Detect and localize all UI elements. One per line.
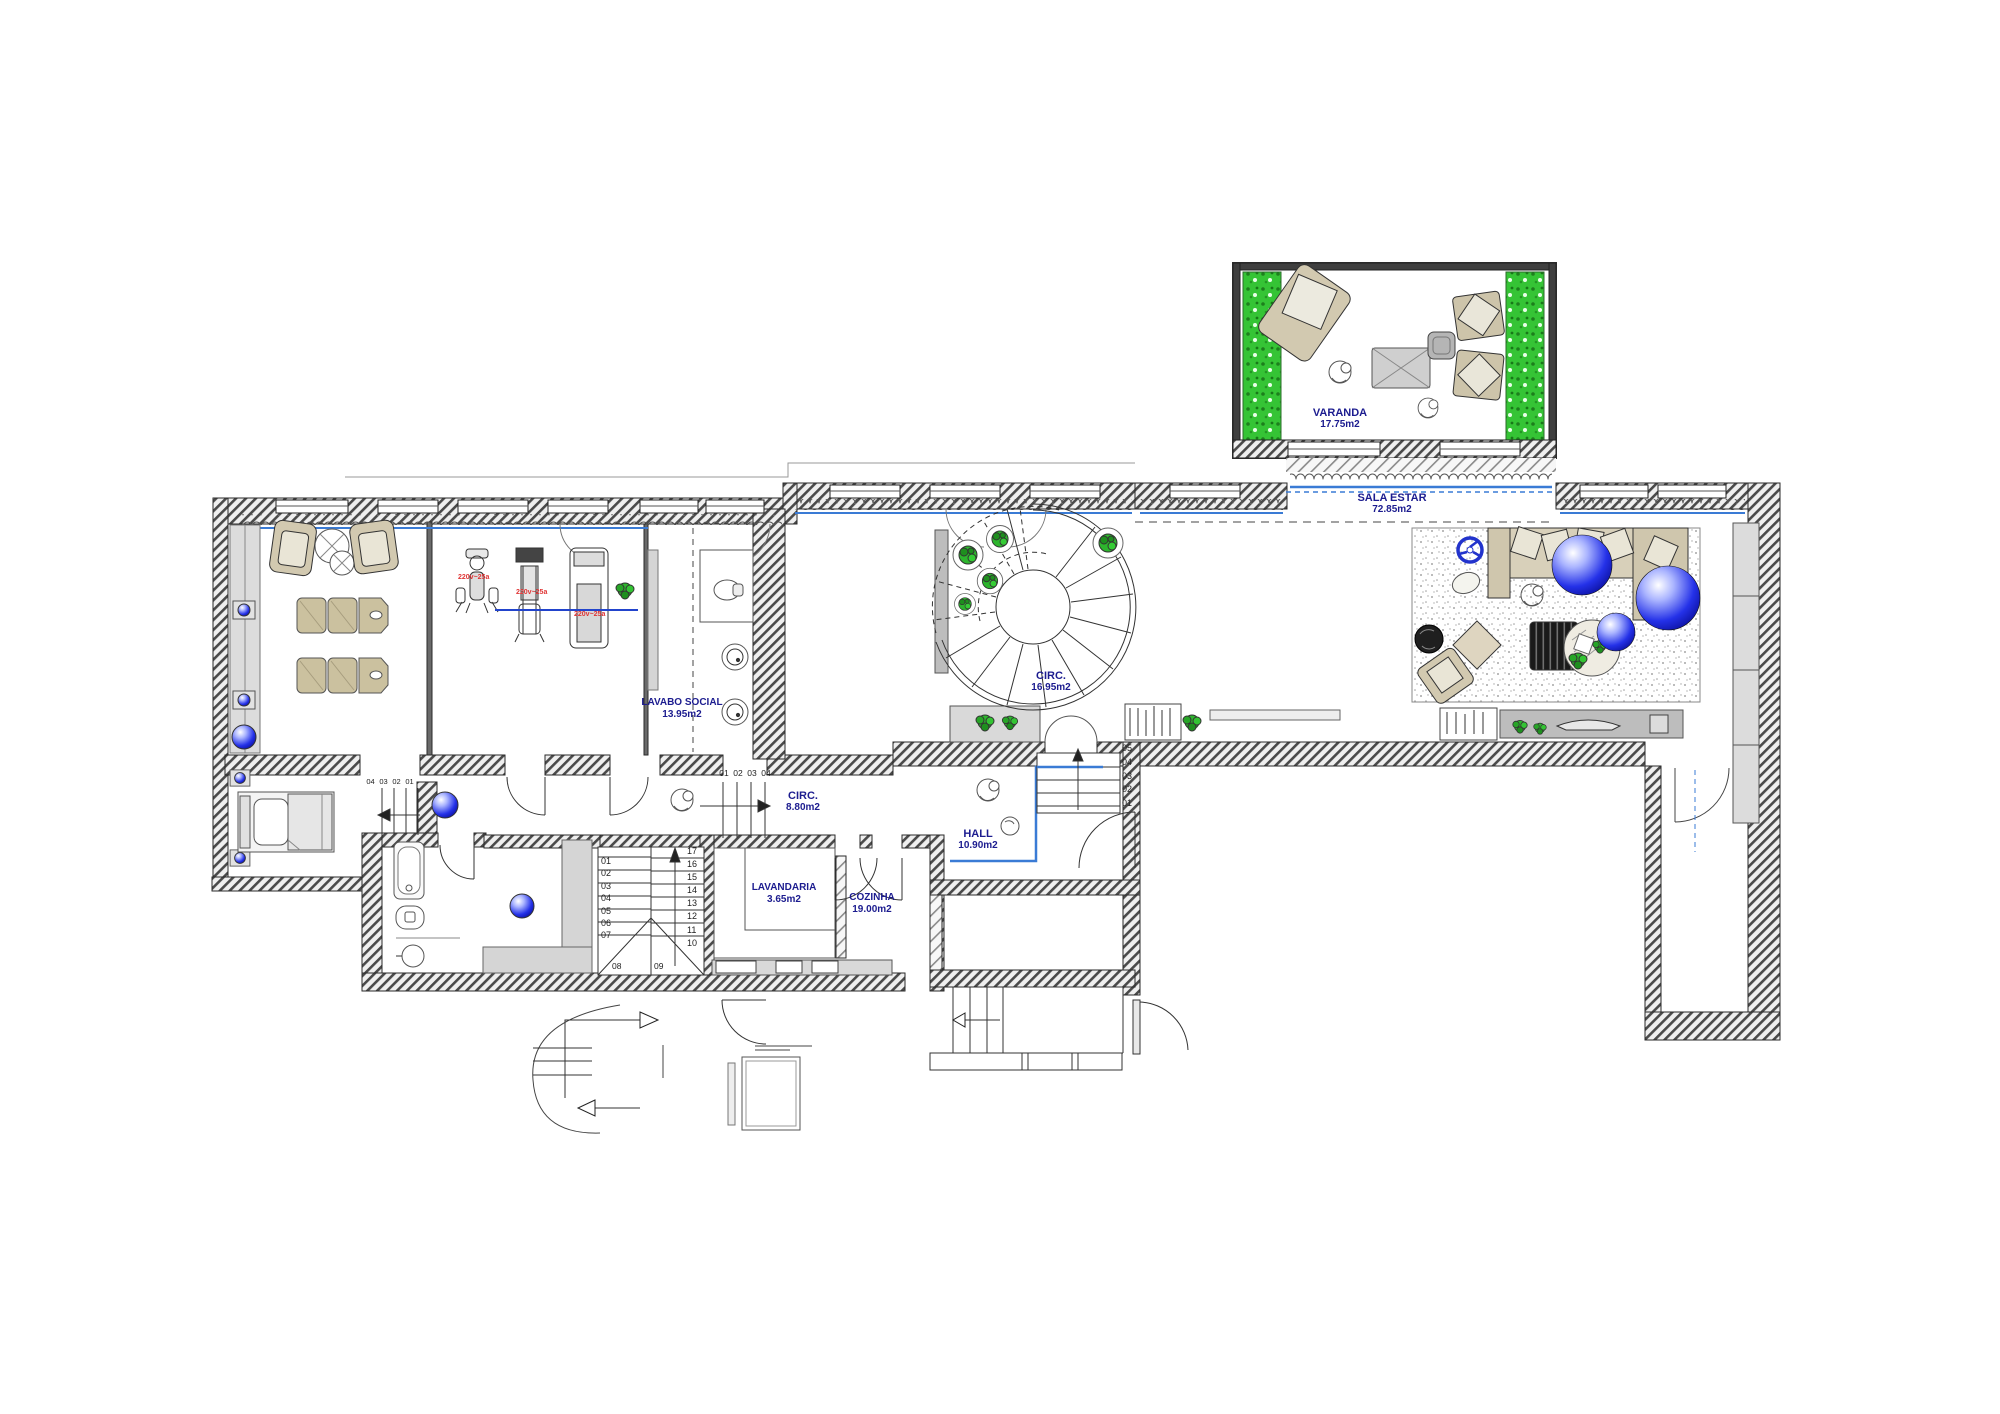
room-name: CIRC. (1036, 670, 1066, 682)
plant-icon (616, 583, 634, 599)
arrow-right (640, 1012, 658, 1028)
veranda (1233, 261, 1556, 492)
person-figure (671, 789, 693, 811)
door-arc (722, 1000, 766, 1044)
stair-number: 12 (687, 910, 697, 923)
stair-number: 02 (601, 867, 611, 879)
door-arc (440, 845, 474, 879)
exercise-bike (456, 549, 498, 613)
blue-sphere (1552, 535, 1612, 595)
stair-number: 10 (687, 937, 697, 950)
veranda-side-table (1428, 332, 1455, 359)
entry-landing (930, 987, 1188, 1070)
stair-number: 04 (759, 768, 773, 778)
stub-door (1675, 768, 1729, 822)
lounge-armchair (349, 519, 400, 575)
room-area: 13.95m2 (641, 709, 722, 721)
veranda-armchair-2 (1453, 350, 1505, 401)
plant-icon (953, 540, 983, 570)
stair-number: 03 (1122, 770, 1132, 784)
room-area: 10.90m2 (958, 840, 997, 852)
stair-number: 17 (687, 845, 697, 858)
room-label-sala-estar: SALA ESTAR 72.85m2 (1357, 492, 1426, 516)
stair-number: 02 (390, 777, 403, 786)
hedge-right (1506, 272, 1544, 442)
room-label-varanda: VARANDA 17.75m2 (1313, 407, 1367, 431)
stair-number: 16 (687, 858, 697, 871)
room-area: 17.75m2 (1313, 419, 1367, 431)
stair-number: 01 (1122, 797, 1132, 811)
equipment-power-label: 220v~25a (458, 574, 489, 581)
main-stair-numbers-right: 1716151413121110 (687, 845, 697, 950)
room-name: COZINHA (849, 892, 895, 903)
lounge-gym (230, 519, 638, 753)
bed (238, 792, 334, 852)
treadmill (570, 548, 608, 648)
arrow-right (758, 800, 770, 812)
room-area: 19.00m2 (849, 904, 895, 916)
partition (935, 530, 948, 673)
curved-entry-stair (533, 1005, 663, 1133)
stair-number: 06 (601, 917, 611, 929)
storage-stair (483, 840, 704, 975)
stair-number: 05 (1122, 742, 1132, 756)
room-area: 72.85m2 (1357, 504, 1426, 516)
insulation-band (242, 514, 782, 525)
stair-number: 01 (601, 855, 611, 867)
stair-number: 07 (601, 929, 611, 941)
equipment-power-label: 220v~25a (516, 589, 547, 596)
person-figure (977, 779, 999, 801)
room-name: LAVANDARIA (752, 882, 817, 893)
door-arc (1140, 1002, 1188, 1050)
room-name: SALA ESTAR (1357, 492, 1426, 504)
room-name: CIRC. (788, 790, 818, 802)
blue-sphere (1597, 613, 1635, 651)
plant-icon (987, 526, 1014, 553)
wall-cabinet (1733, 523, 1759, 823)
stair-number: 03 (601, 880, 611, 892)
stair-number: 01 (717, 768, 731, 778)
arrow-left (578, 1100, 595, 1116)
stair-number: 09 (654, 961, 696, 971)
room-name: VARANDA (1313, 407, 1367, 419)
door-arc (507, 777, 545, 815)
room-label-hall: HALL 10.90m2 (958, 828, 997, 852)
veranda-armchair-1 (1452, 291, 1505, 341)
hall-stair-numbers: 0504030201 (1122, 742, 1132, 811)
hedge-left (1243, 272, 1281, 442)
room-label-cozinha: COZINHA 19.00m2 (849, 892, 895, 916)
equipment-power-label: 220v~25a (574, 611, 605, 618)
plant-icon (1093, 528, 1123, 558)
floor-plan-drawing (0, 0, 2000, 1414)
sink (396, 945, 424, 967)
overhang-line (345, 463, 1135, 477)
stair-number: 02 (1122, 783, 1132, 797)
arrow-left (953, 1013, 965, 1027)
lounge-armchair (269, 519, 318, 576)
main-stair-numbers-left: 01020304050607 (601, 855, 611, 942)
blue-sphere (510, 894, 534, 918)
room-label-circ-main: CIRC. 16.95m2 (1031, 670, 1070, 694)
hall-stair (1037, 749, 1120, 813)
stair-number: 03 (377, 777, 390, 786)
room-label-circ-small: CIRC. 8.80m2 (786, 790, 820, 814)
stair-number: 04 (364, 777, 377, 786)
room-label-lavandaria: LAVANDARIA 3.65m2 (752, 882, 817, 906)
stair-number: 05 (601, 905, 611, 917)
annex-step-numbers: 04030201 (364, 777, 416, 786)
wall-light (233, 601, 255, 619)
corridor-step-numbers: 01020304 (717, 768, 773, 778)
stair-number: 13 (687, 897, 697, 910)
stair-number: 02 (731, 768, 745, 778)
room-area: 8.80m2 (786, 802, 820, 814)
massage-table (297, 658, 388, 693)
bidet (396, 906, 424, 929)
stair-number: 08 (612, 961, 654, 971)
double-door-arcs (1045, 716, 1097, 742)
stair-number: 01 (403, 777, 416, 786)
stair-number: 11 (687, 924, 697, 937)
wall-light (230, 770, 250, 786)
room-name: HALL (963, 828, 992, 840)
bathtub (394, 842, 424, 899)
blue-sphere (432, 792, 458, 818)
door-arc (610, 777, 648, 815)
room-label-lavabo: LAVABO SOCIAL 13.95m2 (641, 697, 722, 721)
plant-icon (977, 568, 1003, 594)
stair-number: 04 (1122, 756, 1132, 770)
stair-number: 03 (745, 768, 759, 778)
blue-sphere (232, 725, 256, 749)
room-area: 3.65m2 (752, 894, 817, 906)
massage-table (297, 598, 388, 633)
main-stair-numbers-landing: 0809 (612, 961, 696, 971)
wall-light (233, 691, 255, 709)
stair-number: 14 (687, 884, 697, 897)
stair-number: 15 (687, 871, 697, 884)
plant-icon (955, 594, 976, 615)
blue-sphere (1636, 566, 1700, 630)
arrow-left (378, 809, 390, 821)
floor-plan-page: VARANDA 17.75m2 SALA ESTAR 72.85m2 CIRC.… (0, 0, 2000, 1414)
room-area: 16.95m2 (1031, 682, 1070, 694)
stair-number: 04 (601, 892, 611, 904)
console-band (950, 704, 1683, 742)
room-name: LAVABO SOCIAL (641, 697, 722, 708)
